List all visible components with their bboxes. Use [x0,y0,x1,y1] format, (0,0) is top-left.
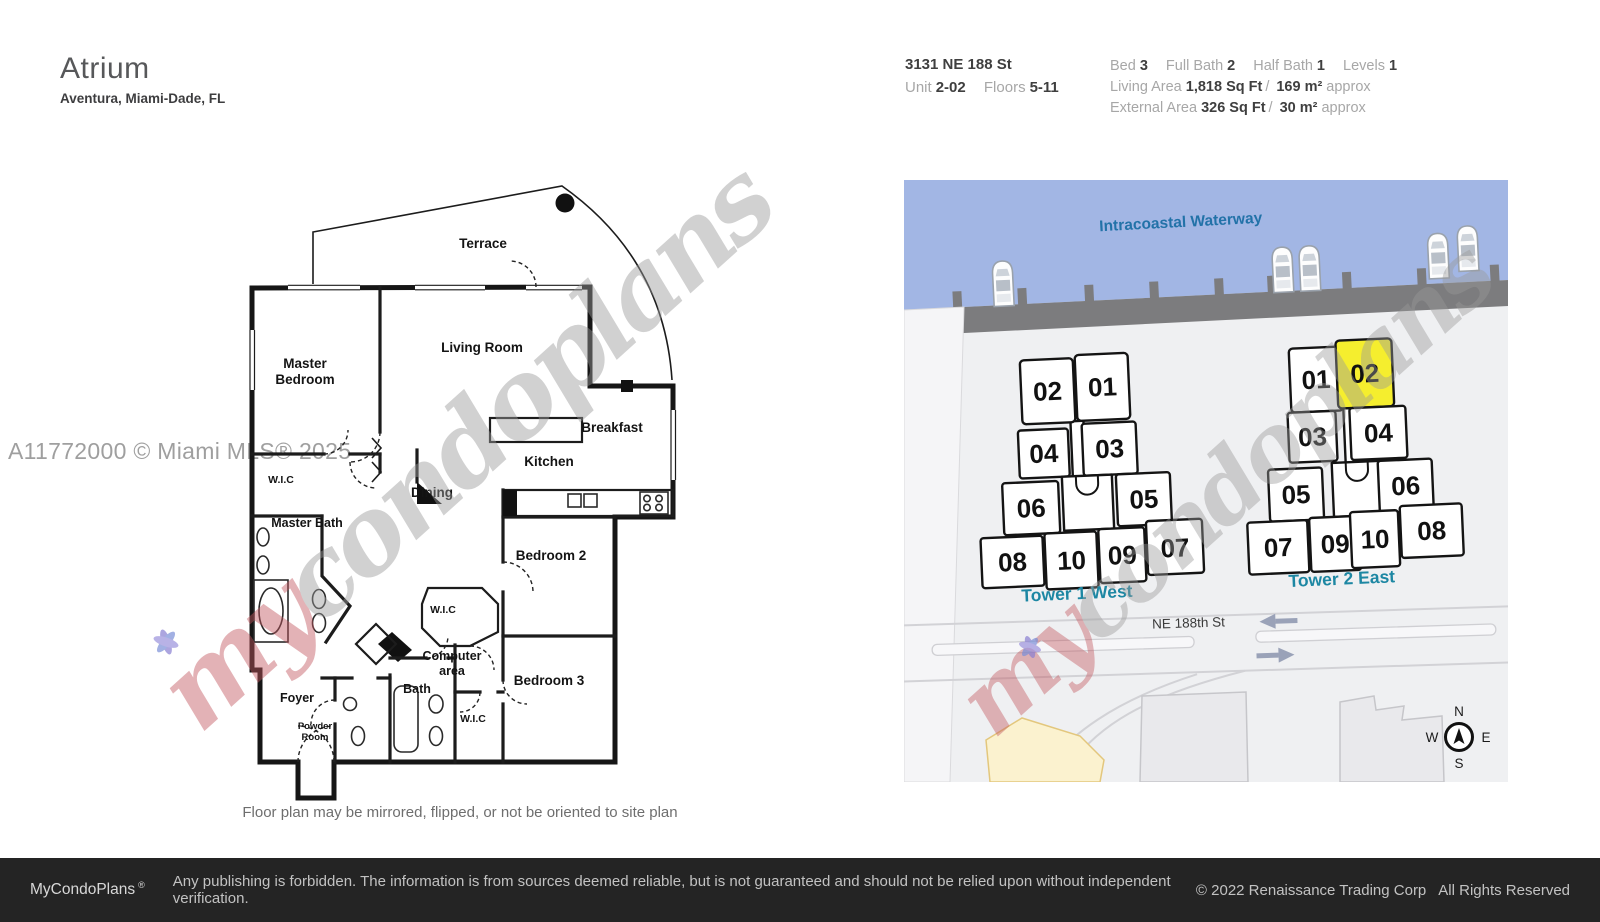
specs-block: Bed3 Full Bath2 Half Bath1 Levels1 Livin… [1110,56,1411,119]
unit-floors-line: Unit2-02 Floors5-11 [905,79,1073,96]
footer-brand: MyCondoPlans® [30,880,145,899]
footer-disclaimer: Any publishing is forbidden. The informa… [173,873,1184,907]
room-label-master-1: Master [283,356,327,371]
svg-text:N: N [1454,704,1464,719]
svg-text:07: 07 [1263,532,1293,563]
room-label-computer-2: area [439,664,466,678]
footer-rights: All Rights Reserved [1438,882,1570,899]
full-bath-value: 2 [1227,58,1235,74]
svg-text:E: E [1481,730,1490,745]
registered-mark: ® [138,880,145,890]
room-label-powder-1: Powder [298,721,333,732]
powder-room-fixtures [344,698,365,746]
floors-value: 5-11 [1030,79,1059,96]
tower2-unit-10: 10 [1350,510,1400,568]
room-label-computer-1: Computer [422,649,481,663]
page-location: Aventura, Miami-Dade, FL [60,91,225,106]
full-bath-label: Full Bath [1166,58,1223,74]
tower2-core [1332,461,1384,517]
levels-label: Levels [1343,58,1385,74]
room-label-terrace: Terrace [459,236,507,251]
address-block: 3131 NE 188 St Unit2-02 Floors5-11 [905,56,1073,96]
room-label-breakfast: Breakfast [581,420,643,435]
svg-text:02: 02 [1032,376,1062,407]
terrace-spa-dot [556,194,575,213]
footer-bar: MyCondoPlans® Any publishing is forbidde… [0,858,1600,922]
svg-text:01: 01 [1087,371,1117,402]
svg-text:08: 08 [1417,515,1447,546]
tower1-unit-06: 06 [1002,481,1060,535]
svg-text:W: W [1426,730,1439,745]
svg-text:09: 09 [1320,528,1350,559]
room-label-master-2: Bedroom [275,372,334,387]
unit-label: Unit [905,79,932,96]
half-bath-value: 1 [1317,58,1325,74]
levels-value: 1 [1389,58,1397,74]
tower1-unit-01: 01 [1075,353,1131,421]
room-label-bedroom3: Bedroom 3 [514,673,585,688]
half-bath-label: Half Bath [1253,58,1313,74]
svg-text:06: 06 [1391,470,1421,501]
wic-mid-walls [422,588,498,646]
room-label-wic-b3: W.I.C [460,713,486,725]
floor-plan: Terrace Master Bedroom Living Room Break… [230,180,690,820]
bed-value: 3 [1140,58,1148,74]
room-label-bath: Bath [403,682,431,696]
footer-copyright: © 2022 Renaissance Trading Corp [1196,882,1426,899]
condo-plan-sheet: Atrium Aventura, Miami-Dade, FL 3131 NE … [0,0,1600,922]
unit-value: 2-02 [936,79,966,96]
tower2-unit-08: 08 [1400,503,1464,558]
tower1-unit-08: 08 [980,536,1044,589]
site-plan: Intracoastal Waterway NE 188th St [904,180,1508,782]
street-address: 3131 NE 188 St [905,56,1073,73]
floors-label: Floors [984,79,1026,96]
spec-counts-line: Bed3 Full Bath2 Half Bath1 Levels1 [1110,56,1411,77]
svg-text:08: 08 [997,546,1027,577]
external-area-line: External Area326 Sq Ft/30 m²approx [1110,98,1411,119]
plan-note: Floor plan may be mirrored, flipped, or … [230,804,690,821]
kitchen-counter [503,490,673,516]
tower1-unit-03: 03 [1082,421,1138,475]
room-label-bedroom2: Bedroom 2 [516,548,587,563]
room-label-foyer: Foyer [280,691,314,705]
tower1-unit-04: 04 [1018,428,1070,478]
svg-text:S: S [1454,756,1463,771]
living-area-line: Living Area1,818 Sq Ft/169 m²approx [1110,77,1411,98]
svg-text:06: 06 [1016,492,1046,523]
page-title: Atrium [60,52,225,86]
building-outline-1 [1140,692,1248,782]
footer-copyright-group: © 2022 Renaissance Trading CorpAll Right… [1184,882,1570,899]
svg-text:10: 10 [1360,524,1390,555]
svg-text:03: 03 [1095,433,1125,464]
svg-text:04: 04 [1029,438,1060,469]
tower1-unit-02: 02 [1020,358,1076,424]
bed-label: Bed [1110,58,1136,74]
room-label-wic-master: W.I.C [268,474,294,486]
room-label-wic-mid: W.I.C [430,604,456,616]
title-block: Atrium Aventura, Miami-Dade, FL [60,52,225,106]
room-label-powder-2: Room [302,732,329,743]
